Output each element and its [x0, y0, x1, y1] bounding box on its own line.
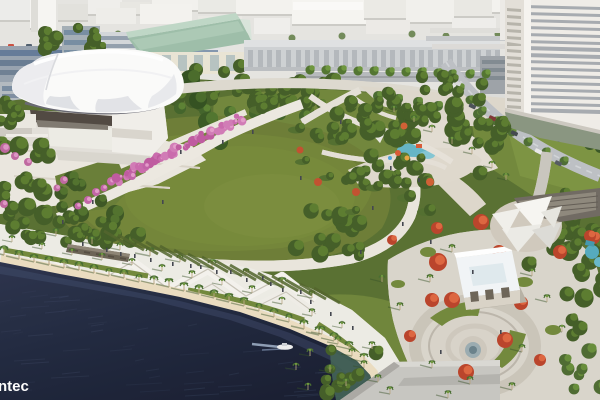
svg-text:ntec: ntec — [0, 378, 29, 395]
